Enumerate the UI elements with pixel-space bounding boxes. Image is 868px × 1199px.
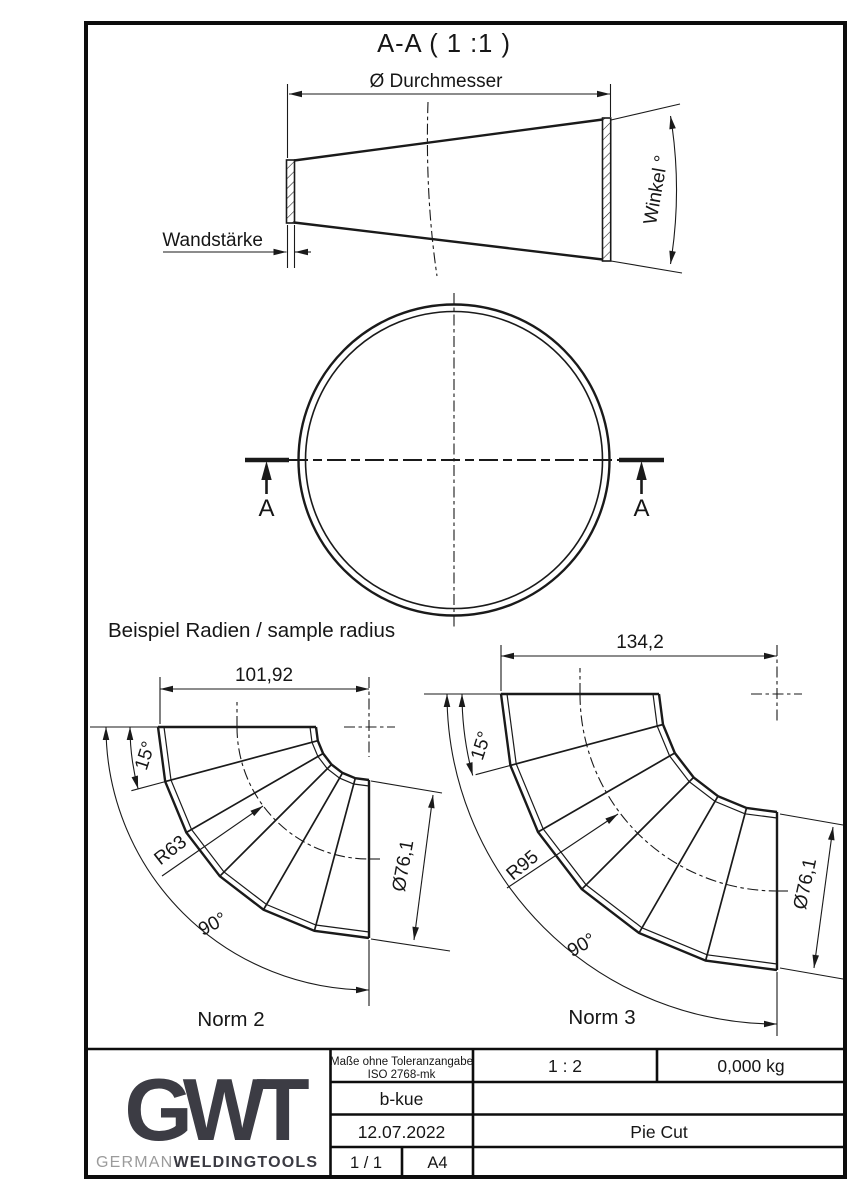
paper-format: A4: [427, 1154, 447, 1172]
cone-bottom-outline: [294, 223, 603, 260]
norm2-name: Norm 2: [197, 1008, 264, 1031]
norm3-bend-angle-label: 90°: [564, 929, 599, 962]
drawing-page: A-A ( 1 :1 ) Ø Durchmesser Winkel ° Wand…: [0, 0, 868, 1199]
section-view-title: A-A ( 1 :1 ): [377, 30, 511, 58]
norm2-diameter-dimension-line: [414, 795, 433, 940]
technical-drawing-canvas: A-A ( 1 :1 ) Ø Durchmesser Winkel ° Wand…: [0, 0, 868, 1199]
norm3-segment-angle-arc: [462, 694, 473, 776]
norm3-sample: 134,2 15° 90° R95 Ø76,1 Norm 3: [424, 632, 843, 1036]
norm3-radius-label: R95: [503, 846, 543, 884]
angle-dim-label: Winkel °: [640, 154, 673, 226]
company-logo: GWT GERMANWELDINGTOOLS: [96, 1060, 318, 1171]
samples-heading: Beispiel Radien / sample radius: [108, 619, 395, 642]
norm3-name: Norm 3: [568, 1006, 635, 1029]
drawing-title: Pie Cut: [630, 1122, 688, 1142]
norm2-segment-angle-label: 15°: [131, 739, 160, 773]
date-value: 12.07.2022: [358, 1122, 446, 1142]
norm2-diameter-label: Ø76,1: [389, 839, 419, 894]
cut-arrow-right: [636, 461, 646, 480]
sheet-border: [86, 23, 845, 1177]
title-block: Maße ohne Toleranzangabe ISO 2768-mk 1 :…: [86, 1049, 845, 1177]
wall-thickness-label: Wandstärke: [162, 230, 263, 251]
brand-wordmark: GERMANWELDINGTOOLS: [96, 1154, 318, 1171]
logo-gwt-text: GWT: [124, 1060, 309, 1159]
norm3-diameter-label: Ø76,1: [790, 856, 821, 911]
weight-value: 0,000 kg: [717, 1056, 784, 1076]
norm3-length-label: 134,2: [616, 632, 664, 653]
author-value: b-kue: [380, 1089, 424, 1109]
cone-axis-centerline: [427, 102, 437, 276]
norm3-diameter-dimension-line: [814, 827, 833, 968]
cone-small-end-wall-section: [287, 160, 295, 223]
norm2-length-label: 101,92: [235, 665, 293, 686]
diameter-dim-label: Ø Durchmesser: [369, 71, 503, 92]
section-view-a-a: A-A ( 1 :1 ) Ø Durchmesser Winkel ° Wand…: [162, 30, 682, 276]
norm3-segment-angle-label: 15°: [467, 729, 496, 763]
angle-dimension-arc: [671, 116, 677, 264]
tolerance-note-line1: Maße ohne Toleranzangabe: [330, 1056, 473, 1068]
cut-label-right: A: [633, 495, 649, 522]
cut-arrow-left: [261, 461, 271, 480]
norm2-radius-label: R63: [151, 832, 191, 870]
norm2-seam-lines: [165, 741, 355, 931]
scale-value: 1 : 2: [548, 1056, 582, 1076]
tolerance-note-line2: ISO 2768-mk: [368, 1069, 436, 1081]
cut-label-left: A: [258, 495, 274, 522]
norm2-bend-angle-label: 90°: [195, 909, 230, 941]
plan-view: A A: [245, 293, 664, 629]
norm2-sample: 101,92 15° 90° R63 Ø76,1 Norm 2: [90, 665, 450, 1031]
cone-large-end-wall-section: [603, 118, 611, 261]
sheet-number: 1 / 1: [350, 1154, 382, 1172]
cone-top-outline: [294, 120, 603, 161]
